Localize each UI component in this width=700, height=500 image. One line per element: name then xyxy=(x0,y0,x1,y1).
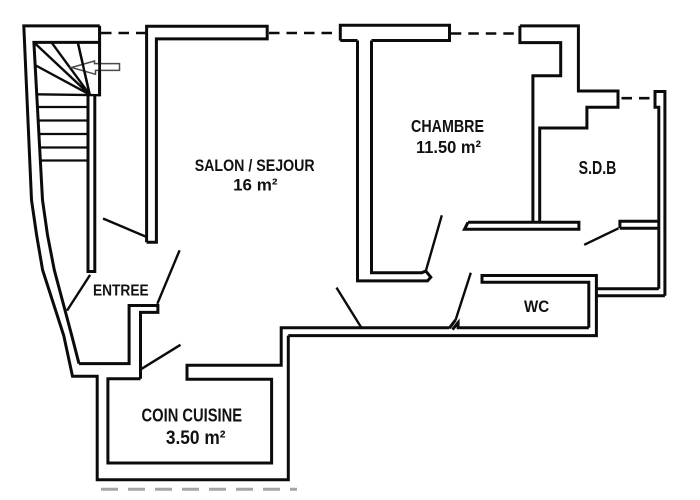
svg-text:16 m²: 16 m² xyxy=(233,175,278,194)
svg-text:CHAMBRE: CHAMBRE xyxy=(411,116,484,136)
svg-text:ENTREE: ENTREE xyxy=(93,283,149,300)
svg-text:WC: WC xyxy=(524,297,549,316)
svg-text:SALON / SEJOUR: SALON / SEJOUR xyxy=(195,156,315,175)
svg-text:11.50 m²: 11.50 m² xyxy=(416,137,481,157)
svg-text:COIN CUISINE: COIN CUISINE xyxy=(142,406,243,426)
svg-text:3.50 m²: 3.50 m² xyxy=(166,428,226,449)
svg-text:S.D.B: S.D.B xyxy=(579,158,617,178)
